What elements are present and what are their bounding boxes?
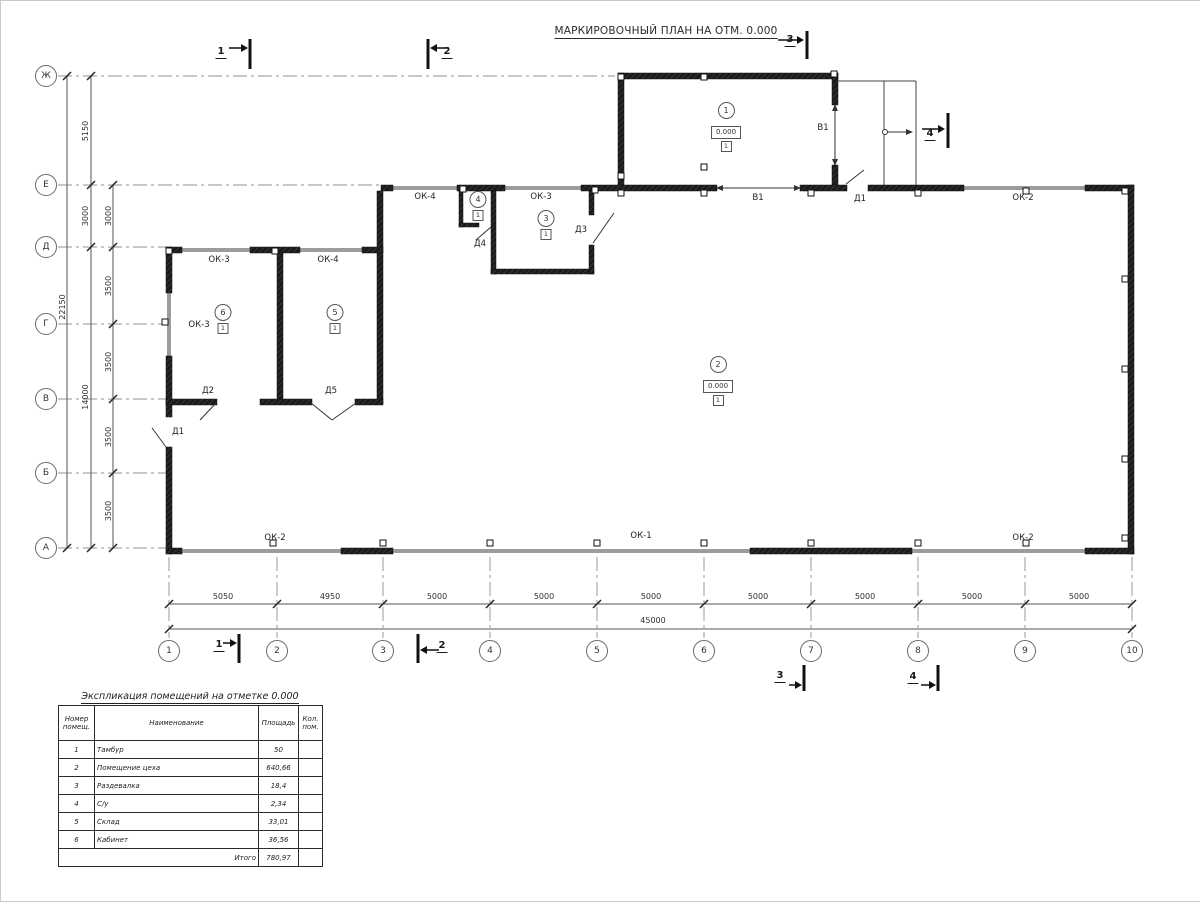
floor-type-mark: 1 bbox=[218, 323, 229, 334]
dimension-label: 5150 bbox=[82, 121, 90, 141]
dimension-label: 3500 bbox=[105, 501, 113, 521]
axis-row-Г: Г bbox=[35, 313, 57, 335]
col-header-number: Номер помещ. bbox=[59, 706, 95, 741]
schedule-row: 4С/у2,34 bbox=[59, 795, 323, 813]
dimension-label: 4950 bbox=[320, 593, 340, 601]
window-label: ОК-3 bbox=[208, 256, 229, 265]
section-label: 2 bbox=[437, 641, 448, 653]
total-value: 780,97 bbox=[259, 849, 299, 867]
schedule-table: Номер помещ. Наименование Площадь Кол. п… bbox=[58, 705, 323, 867]
door-label: Д2 bbox=[202, 387, 214, 396]
section-label: 3 bbox=[785, 35, 796, 47]
schedule-total-row: Итого 780,97 bbox=[59, 849, 323, 867]
dimension-label: 45000 bbox=[640, 617, 665, 625]
room-marker-3: 31 bbox=[538, 210, 555, 240]
axis-col-1: 1 bbox=[158, 640, 180, 662]
windows bbox=[167, 186, 1085, 553]
axis-row-Ж: Ж bbox=[35, 65, 57, 87]
room-number: 1 bbox=[717, 102, 734, 119]
section-label: 3 bbox=[775, 671, 786, 683]
section-label: 1 bbox=[216, 47, 227, 59]
schedule-row: 3Раздевалка18,4 bbox=[59, 777, 323, 795]
room-number: 6 bbox=[215, 304, 232, 321]
section-label: 1 bbox=[214, 640, 225, 652]
dimension-label: 5000 bbox=[534, 593, 554, 601]
axis-col-9: 9 bbox=[1014, 640, 1036, 662]
elevation-mark: 0.000 bbox=[703, 380, 733, 393]
door-label: Д1 bbox=[854, 195, 866, 204]
floor-type-mark: 1 bbox=[541, 229, 552, 240]
room-number: 5 bbox=[327, 304, 344, 321]
schedule-row: 2Помещение цеха640,66 bbox=[59, 759, 323, 777]
dimension-label: 3500 bbox=[105, 352, 113, 372]
axis-row-А: А bbox=[35, 537, 57, 559]
section-label: 4 bbox=[925, 129, 936, 141]
room-number: 2 bbox=[709, 356, 726, 373]
col-header-area: Площадь bbox=[259, 706, 299, 741]
window-label: ОК-4 bbox=[414, 193, 435, 202]
window-label: ОК-3 bbox=[188, 321, 209, 330]
axis-col-3: 3 bbox=[372, 640, 394, 662]
room-marker-5: 51 bbox=[327, 304, 344, 334]
door-label: Д3 bbox=[575, 226, 587, 235]
section-label: 2 bbox=[442, 47, 453, 59]
axis-col-8: 8 bbox=[907, 640, 929, 662]
window-label: ОК-4 bbox=[317, 256, 338, 265]
gate-label: В1 bbox=[752, 194, 763, 203]
window-label: ОК-2 bbox=[1012, 194, 1033, 203]
dimension-label: 3000 bbox=[105, 206, 113, 226]
schedule-row: 1Тамбур50 bbox=[59, 741, 323, 759]
room-marker-2: 20.0001 bbox=[703, 356, 733, 406]
room-number: 4 bbox=[470, 191, 487, 208]
dimension-label: 5000 bbox=[748, 593, 768, 601]
floor-type-mark: 1 bbox=[473, 210, 484, 221]
axis-col-4: 4 bbox=[479, 640, 501, 662]
axis-col-5: 5 bbox=[586, 640, 608, 662]
window-label: ОК-3 bbox=[530, 193, 551, 202]
door-label: Д1 bbox=[172, 428, 184, 437]
floor-type-mark: 1 bbox=[712, 395, 723, 406]
window-label: ОК-1 bbox=[630, 532, 651, 541]
axis-row-Д: Д bbox=[35, 236, 57, 258]
elevation-mark: 0.000 bbox=[711, 126, 741, 139]
dimension-ticks bbox=[63, 72, 1136, 633]
door-label: Д5 bbox=[325, 387, 337, 396]
walls bbox=[166, 73, 1134, 554]
axis-row-В: В bbox=[35, 388, 57, 410]
col-header-name: Наименование bbox=[95, 706, 259, 741]
schedule-row: 6Кабинет36,56 bbox=[59, 831, 323, 849]
dimension-label: 5000 bbox=[427, 593, 447, 601]
axis-lines bbox=[58, 76, 1132, 638]
room-schedule: Экспликация помещений на отметке 0.000 Н… bbox=[58, 691, 322, 867]
dimension-label: 3000 bbox=[82, 206, 90, 226]
axis-row-Б: Б bbox=[35, 462, 57, 484]
section-label: 4 bbox=[908, 672, 919, 684]
dimension-label: 22150 bbox=[59, 294, 67, 319]
drawing-sheet: МАРКИРОВОЧНЫЙ ПЛАН НА ОТМ. 0.000 ЖЕДГВБА… bbox=[0, 0, 1200, 902]
column-markers bbox=[162, 71, 1128, 546]
door-label: Д4 bbox=[474, 240, 486, 249]
window-label: ОК-2 bbox=[264, 534, 285, 543]
dimension-label: 14000 bbox=[82, 384, 90, 409]
col-header-count: Кол. пом. bbox=[299, 706, 323, 741]
schedule-row: 5Склад33,01 bbox=[59, 813, 323, 831]
dimension-label: 5000 bbox=[1069, 593, 1089, 601]
dimension-label: 5000 bbox=[641, 593, 661, 601]
floor-type-mark: 1 bbox=[720, 141, 731, 152]
floor-type-mark: 1 bbox=[330, 323, 341, 334]
room-marker-1: 10.0001 bbox=[711, 102, 741, 152]
axis-row-Е: Е bbox=[35, 174, 57, 196]
opening-arrowheads bbox=[716, 104, 913, 191]
door-swings bbox=[152, 81, 916, 447]
axis-col-10: 10 bbox=[1121, 640, 1143, 662]
dimension-label: 5000 bbox=[855, 593, 875, 601]
axis-col-2: 2 bbox=[266, 640, 288, 662]
dimension-label: 5000 bbox=[962, 593, 982, 601]
dimension-label: 3500 bbox=[105, 276, 113, 296]
total-label: Итого bbox=[59, 849, 259, 867]
room-number: 3 bbox=[538, 210, 555, 227]
room-marker-6: 61 bbox=[215, 304, 232, 334]
drawing-title: МАРКИРОВОЧНЫЙ ПЛАН НА ОТМ. 0.000 bbox=[555, 25, 778, 39]
room-marker-4: 41 bbox=[470, 191, 487, 221]
dimension-label: 5050 bbox=[213, 593, 233, 601]
dimension-label: 3500 bbox=[105, 427, 113, 447]
window-label: ОК-2 bbox=[1012, 534, 1033, 543]
axis-col-6: 6 bbox=[693, 640, 715, 662]
schedule-title: Экспликация помещений на отметке 0.000 bbox=[58, 691, 322, 702]
axis-col-7: 7 bbox=[800, 640, 822, 662]
gate-label: В1 bbox=[817, 124, 828, 133]
